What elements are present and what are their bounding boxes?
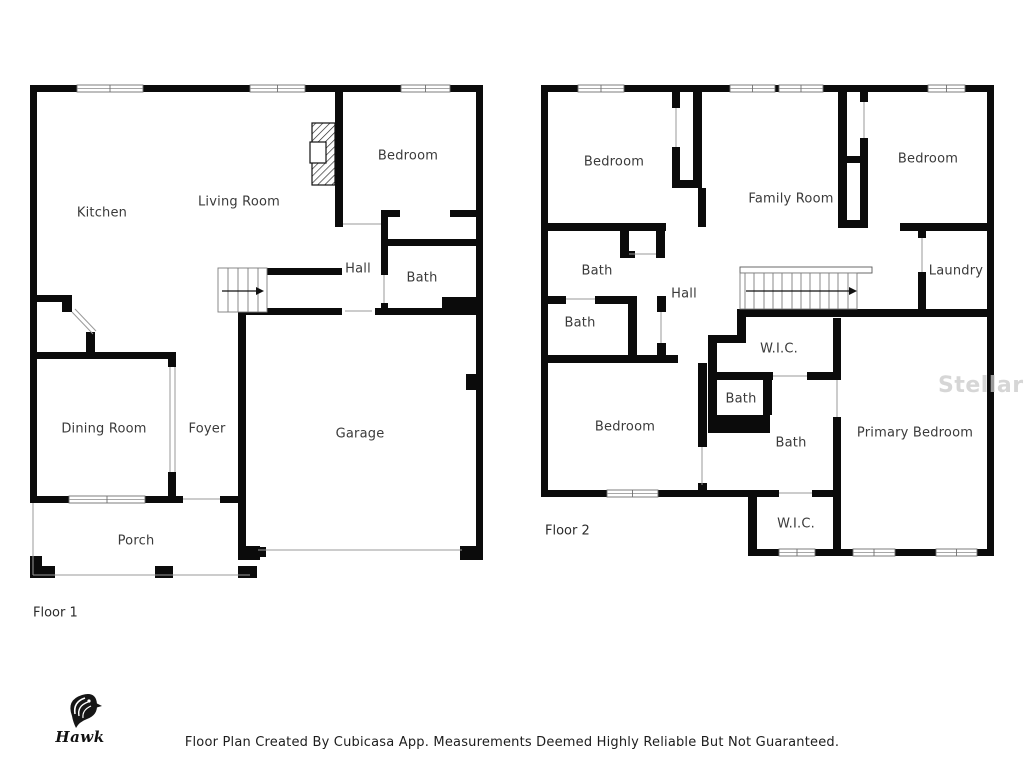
- room-label-porch: Porch: [118, 534, 155, 549]
- room-label-bath-small: Bath: [725, 392, 756, 407]
- room-label-bedroom-top-left: Bedroom: [584, 155, 644, 170]
- floor-plan-drawing: [0, 0, 1024, 768]
- room-label-bath: Bath: [406, 271, 437, 286]
- room-label-wic-top: W.I.C.: [760, 342, 798, 357]
- room-label-family-room: Family Room: [748, 192, 833, 207]
- floor-plan-page: KitchenLiving RoomBedroomHallBathDining …: [0, 0, 1024, 768]
- floor-label-floor-2: Floor 2: [545, 524, 590, 539]
- room-label-hall: Hall: [345, 262, 371, 277]
- walls-layer: [30, 85, 994, 578]
- room-label-bedroom-top-right: Bedroom: [898, 152, 958, 167]
- room-label-bedroom: Bedroom: [378, 149, 438, 164]
- room-label-bath-lower: Bath: [564, 316, 595, 331]
- room-label-wic-bottom: W.I.C.: [777, 517, 815, 532]
- room-label-garage: Garage: [336, 427, 385, 442]
- room-label-bath-primary: Bath: [775, 436, 806, 451]
- room-label-foyer: Foyer: [188, 422, 225, 437]
- stellar-mls-watermark: Stellar MLS: [938, 373, 1024, 398]
- fireplace-icon: [310, 123, 335, 185]
- hawk-head-icon: [58, 688, 102, 728]
- room-label-living-room: Living Room: [198, 195, 280, 210]
- floor-label-floor-1: Floor 1: [33, 606, 78, 621]
- room-label-hall: Hall: [671, 287, 697, 302]
- room-label-bath-upper: Bath: [581, 264, 612, 279]
- room-label-primary-bedroom: Primary Bedroom: [857, 426, 973, 441]
- footer-disclaimer: Floor Plan Created By Cubicasa App. Meas…: [0, 735, 1024, 750]
- room-label-dining-room: Dining Room: [61, 422, 146, 437]
- room-label-bedroom-bottom: Bedroom: [595, 420, 655, 435]
- room-label-laundry: Laundry: [929, 264, 983, 279]
- room-label-kitchen: Kitchen: [77, 206, 127, 221]
